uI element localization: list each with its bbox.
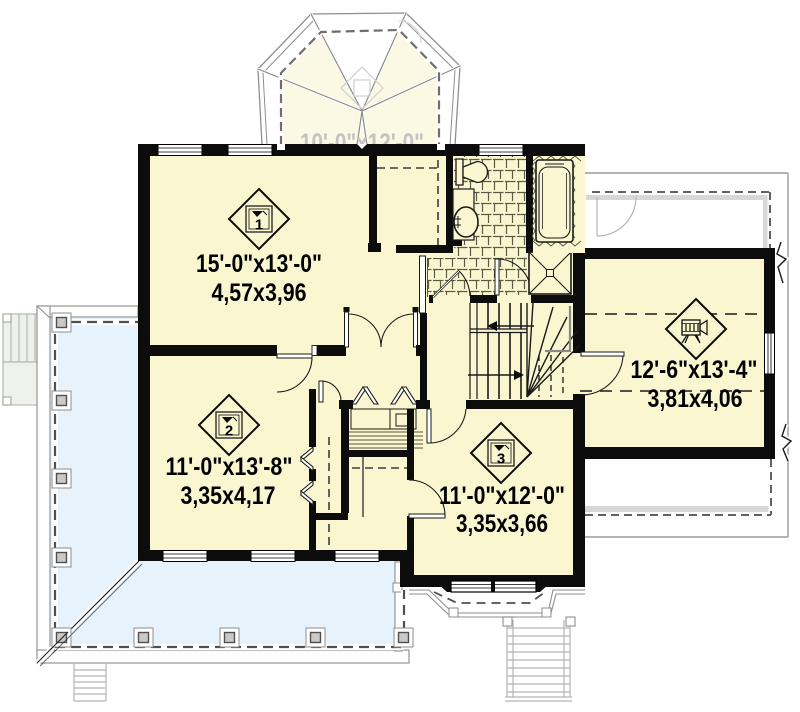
svg-text:11'-0"x12'-0": 11'-0"x12'-0" (439, 482, 565, 510)
svg-text:3,81x4,06: 3,81x4,06 (648, 385, 743, 413)
svg-text:12'-6"x13'-4": 12'-6"x13'-4" (631, 356, 758, 384)
svg-text:3,35x4,17: 3,35x4,17 (181, 482, 276, 510)
svg-text:11'-0"x13'-8": 11'-0"x13'-8" (166, 453, 293, 481)
svg-text:3: 3 (497, 451, 505, 468)
svg-text:1: 1 (255, 217, 263, 234)
svg-text:3,35x3,66: 3,35x3,66 (456, 510, 548, 538)
svg-text:2: 2 (225, 423, 233, 440)
svg-text:4,57x3,96: 4,57x3,96 (212, 279, 307, 307)
svg-text:15'-0"x13'-0": 15'-0"x13'-0" (196, 250, 322, 278)
